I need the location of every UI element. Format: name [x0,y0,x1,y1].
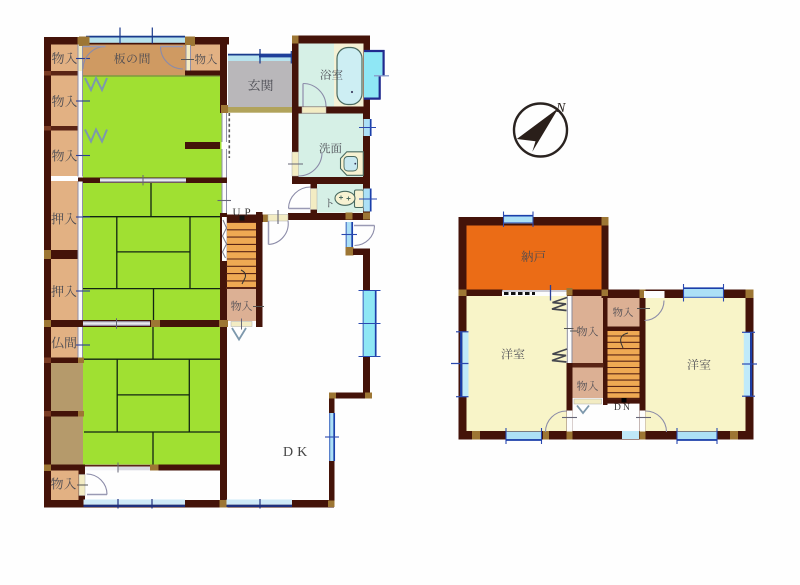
svg-text:DN: DN [614,403,632,413]
svg-text:DK: DK [283,445,311,460]
svg-text:N: N [555,101,566,116]
